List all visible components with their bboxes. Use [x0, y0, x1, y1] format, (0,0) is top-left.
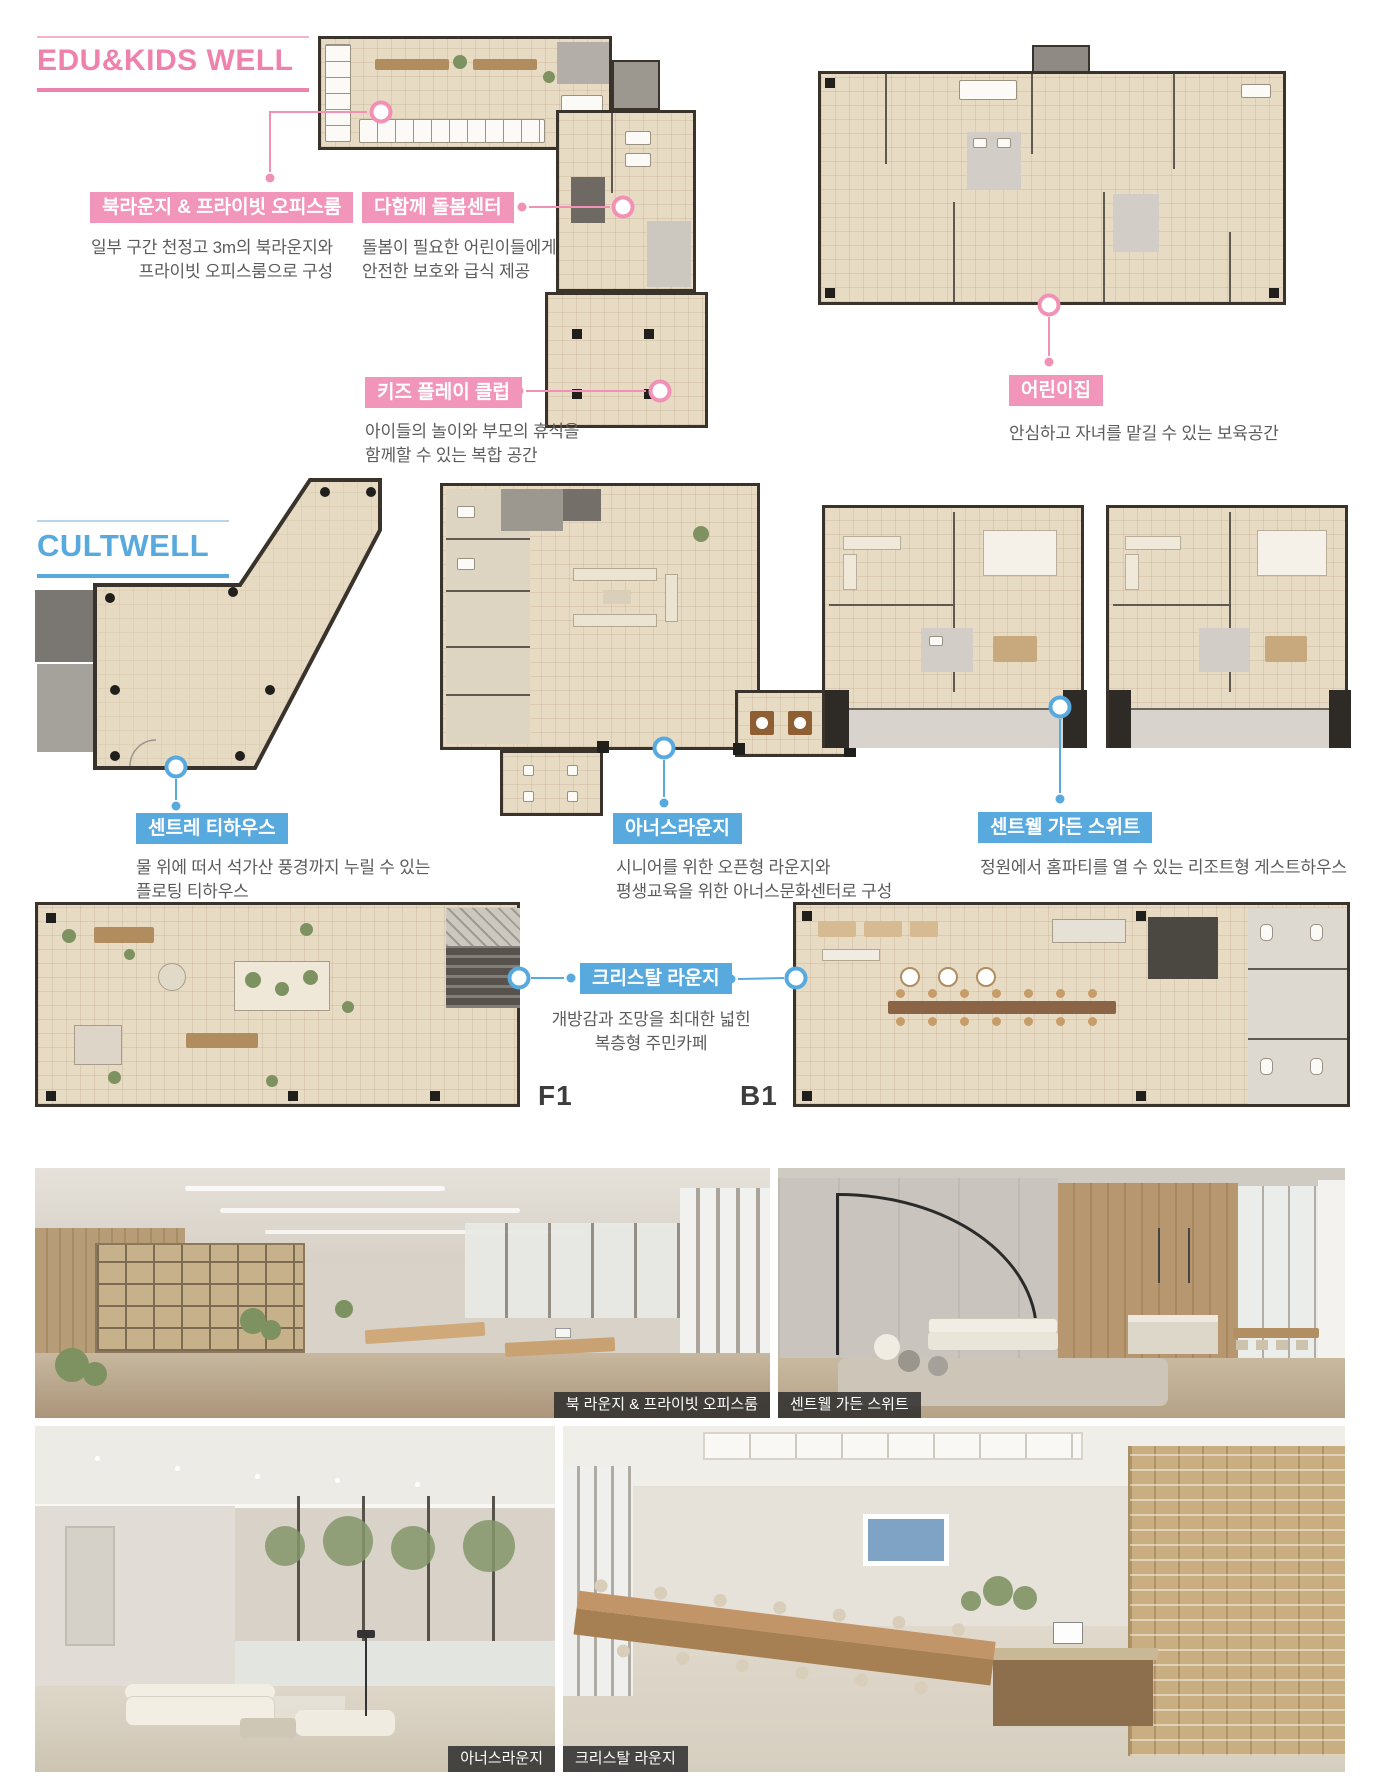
lamp-head [357, 1630, 375, 1638]
kitchen-counter [959, 80, 1017, 100]
wall [446, 646, 530, 648]
locker-column [325, 44, 351, 142]
low-table [240, 1718, 296, 1738]
stairs [446, 946, 520, 1008]
wall [446, 694, 530, 696]
edu-header-underline [37, 88, 309, 92]
sofa [822, 949, 880, 961]
connector-line [738, 978, 784, 979]
connector-dot [172, 802, 181, 811]
chair [523, 791, 534, 802]
lounge-seating [74, 1025, 122, 1065]
floor-plan-tea-house [35, 478, 385, 778]
column [1269, 288, 1279, 298]
round-table [976, 967, 996, 987]
service-room [612, 60, 660, 110]
desk-top [988, 1648, 1158, 1660]
toilet [1260, 1058, 1273, 1075]
stool [992, 989, 1001, 998]
plant [453, 55, 467, 69]
desc-crystal-lounge: 개방감과 조망을 최대한 넓힌 복층형 주민카페 [552, 1008, 751, 1056]
photo-caption-honors-lounge: 아너스라운지 [448, 1746, 555, 1772]
ceiling [35, 1426, 555, 1506]
column [1136, 911, 1146, 921]
column [597, 741, 609, 753]
wall [1031, 74, 1033, 154]
photo-book-lounge: 북 라운지 & 프라이빗 오피스룸 [35, 1168, 770, 1418]
stool [914, 1680, 928, 1694]
floor-tag-f1: F1 [538, 1080, 573, 1112]
toilet [1310, 924, 1323, 941]
pendant-light [1158, 1228, 1160, 1283]
bed [983, 530, 1057, 576]
label-book-lounge: 북라운지 & 프라이빗 오피스룸 [90, 192, 353, 223]
terrace-wall [1063, 690, 1087, 748]
wall [446, 590, 530, 592]
chair [1236, 1340, 1248, 1350]
plant [1013, 1586, 1037, 1610]
garden-terrace [849, 708, 1063, 748]
garden-terrace [1131, 708, 1329, 748]
ceiling-light [335, 1478, 340, 1483]
floor-plan-edu-kids-center [318, 36, 710, 428]
stool [992, 1017, 1001, 1026]
toilet [1260, 924, 1273, 941]
desc-tea-house: 물 위에 떠서 석가산 풍경까지 누릴 수 있는 플로팅 티하우스 [136, 856, 430, 904]
photo-caption-crystal-lounge: 크리스탈 라운지 [563, 1746, 688, 1772]
label-daycare: 어린이집 [1009, 375, 1103, 406]
bathroom-wing [1248, 908, 1347, 1104]
stool [928, 989, 937, 998]
suite-unit [822, 505, 1084, 748]
column [825, 288, 835, 298]
connector-dot [1056, 795, 1065, 804]
label-crystal-lounge: 크리스탈 라운지 [580, 963, 732, 994]
wall [885, 74, 887, 164]
stool [960, 1017, 969, 1026]
fixture [625, 131, 651, 145]
skylight [703, 1432, 1083, 1460]
kids-play-hall [545, 292, 708, 428]
communal-long-table [888, 1001, 1116, 1014]
stool [1088, 1017, 1097, 1026]
cafe-floor [35, 902, 520, 1107]
column [46, 913, 56, 923]
pouf [928, 1356, 948, 1376]
stool [795, 1666, 809, 1680]
stool [1056, 989, 1065, 998]
brochure-page: EDU&KIDS WELL [0, 0, 1381, 1779]
terrace-deck [235, 1641, 555, 1686]
connector-dot [567, 974, 576, 983]
kitchen-island [1052, 919, 1126, 943]
ceiling-light [185, 1186, 445, 1191]
sofa [1125, 554, 1139, 590]
fixture [457, 506, 475, 518]
chair [567, 791, 578, 802]
office-room [647, 221, 691, 287]
wall [1113, 604, 1229, 606]
stool [896, 989, 905, 998]
sofa [1125, 536, 1181, 550]
column [572, 389, 582, 399]
pouf [898, 1350, 920, 1372]
office-wing [556, 110, 696, 292]
photo-honors-lounge: 아너스라운지 [35, 1426, 555, 1772]
stair-core [563, 489, 601, 521]
dining-table [750, 711, 774, 735]
terrace-wall [825, 690, 849, 748]
round-table [158, 963, 186, 991]
desc-garden-suite: 정원에서 홈파티를 열 수 있는 리조트형 게스트하우스 [980, 856, 1347, 880]
tree [265, 1526, 305, 1566]
table [94, 927, 154, 943]
stool [676, 1651, 690, 1665]
dock-block [37, 664, 93, 752]
wall [611, 113, 613, 193]
table [186, 1033, 258, 1048]
sofa-seat [928, 1332, 1058, 1350]
floor-plan-crystal-lounge-f1 [35, 902, 520, 1107]
fixture [973, 138, 987, 148]
dock-block-dark [35, 590, 93, 662]
stool [1088, 989, 1097, 998]
column [802, 1091, 812, 1101]
ceiling-light [415, 1482, 420, 1487]
label-garden-suite: 센트웰 가든 스위트 [978, 812, 1152, 843]
kitchen-island [1128, 1322, 1218, 1354]
terrace-wall [1329, 690, 1351, 748]
label-care-center: 다함께 돌봄센터 [362, 192, 514, 223]
coffee-table [603, 590, 631, 604]
floor-plan-garden-suite-right [1106, 505, 1368, 748]
reception-desk [993, 1660, 1153, 1726]
laptop [555, 1328, 571, 1338]
reading-table [473, 59, 537, 70]
wall [446, 538, 530, 540]
stool [854, 1673, 868, 1687]
sofa [573, 568, 657, 581]
connector-dot [1045, 358, 1054, 367]
fixture [457, 558, 475, 570]
photo-caption-garden-suite: 센트웰 가든 스위트 [778, 1392, 921, 1418]
stool [1056, 1017, 1065, 1026]
suite-unit [1106, 505, 1348, 748]
cafe-floor [793, 902, 1350, 1107]
column [802, 911, 812, 921]
floor-plan-honors-lounge [440, 483, 860, 829]
monitor [1053, 1622, 1083, 1644]
fixture [929, 636, 943, 646]
sofa [843, 536, 901, 550]
fixture [1241, 84, 1271, 98]
daycare-hall [818, 71, 1286, 305]
stool [896, 1017, 905, 1026]
reading-table [375, 59, 449, 70]
tree [463, 1520, 515, 1572]
plant [961, 1591, 981, 1611]
washroom [1113, 194, 1159, 252]
column [430, 1091, 440, 1101]
plant [261, 1320, 281, 1340]
toilet [1310, 1058, 1323, 1075]
seating [864, 921, 902, 937]
column [572, 329, 582, 339]
photo-crystal-lounge: 크리스탈 라운지 [563, 1426, 1345, 1772]
desc-kids-play-club: 아이들의 놀이와 부모의 휴식을 함께할 수 있는 복합 공간 [365, 420, 579, 468]
sofa [295, 1710, 395, 1736]
plant [62, 929, 76, 943]
column [825, 78, 835, 88]
door [65, 1526, 115, 1646]
bathroom [921, 628, 973, 672]
stair-core [1148, 917, 1218, 979]
chair [1256, 1340, 1268, 1350]
seating [818, 921, 856, 937]
armchair [874, 1334, 900, 1360]
column [644, 389, 654, 399]
floor-tag-b1: B1 [740, 1080, 778, 1112]
column [733, 743, 745, 755]
lamp-stem [836, 1193, 839, 1355]
curtain [1318, 1180, 1345, 1360]
floor-lamp [365, 1636, 367, 1716]
wall [1103, 192, 1105, 302]
chair [567, 765, 578, 776]
artwork [863, 1514, 949, 1566]
chair [1276, 1340, 1288, 1350]
meeting-room [557, 42, 609, 84]
dining-table [1233, 1328, 1319, 1338]
plant [335, 1300, 353, 1318]
plant [124, 949, 135, 960]
bed [1257, 530, 1327, 576]
floor-plan-daycare [812, 45, 1290, 307]
connector-dot [266, 174, 275, 183]
fixture [997, 138, 1011, 148]
edu-header-topline [37, 36, 309, 38]
dining-table [1265, 636, 1307, 662]
plant [693, 526, 709, 542]
round-table [938, 967, 958, 987]
plant [342, 1001, 354, 1013]
wall [1229, 232, 1231, 302]
lounge-hall [440, 483, 760, 750]
pendant-light [1188, 1228, 1190, 1283]
stool [1024, 1017, 1033, 1026]
desc-honors-lounge: 시니어를 위한 오픈형 라운지와 평생교육을 위한 아너스문화센터로 구성 [616, 856, 892, 904]
stool [928, 1017, 937, 1026]
floor-plan-crystal-lounge-b1 [793, 902, 1350, 1107]
desc-book-lounge: 일부 구간 천정고 3m의 북라운지와 프라이빗 오피스룸으로 구성 [91, 236, 333, 284]
ceiling-light [175, 1466, 180, 1471]
desc-daycare: 안심하고 자녀를 맡길 수 있는 보육공간 [1009, 422, 1279, 446]
dining-table [993, 636, 1037, 662]
ceiling-light [220, 1208, 520, 1213]
bathroom [1199, 628, 1249, 672]
desc-care-center: 돌봄이 필요한 어린이들에게 안전한 보호와 급식 제공 [362, 236, 556, 284]
study-annex [500, 750, 603, 816]
sofa [665, 574, 678, 622]
tree [391, 1526, 435, 1570]
chair [523, 765, 534, 776]
photo-caption-book-lounge: 북 라운지 & 프라이빗 오피스룸 [554, 1392, 770, 1418]
plant [266, 1075, 278, 1087]
plant [543, 71, 555, 83]
fixture [625, 153, 651, 167]
column [1136, 1091, 1146, 1101]
work-table [365, 1322, 486, 1344]
chair [1296, 1340, 1308, 1350]
planter-box [234, 961, 330, 1011]
stool [735, 1658, 749, 1672]
round-table [900, 967, 920, 987]
window-wall [680, 1188, 770, 1353]
label-honors-lounge: 아너스라운지 [613, 813, 742, 844]
tree [323, 1516, 373, 1566]
stool [616, 1644, 630, 1658]
wall [1173, 74, 1175, 169]
sofa [573, 614, 657, 627]
locker-row [359, 119, 545, 143]
ceiling-light [255, 1474, 260, 1479]
sofa [843, 554, 857, 590]
stool [960, 989, 969, 998]
column [46, 1091, 56, 1101]
column [644, 329, 654, 339]
window-band [465, 1223, 680, 1318]
dining-table [788, 711, 812, 735]
edu-section-title: EDU&KIDS WELL [37, 44, 294, 78]
wall [953, 202, 955, 302]
elevator-core [571, 177, 605, 223]
stool [1024, 989, 1033, 998]
photo-garden-suite: 센트웰 가든 스위트 [778, 1168, 1345, 1418]
stone-wall [1128, 1446, 1345, 1756]
void-hatch [446, 908, 520, 946]
plant [983, 1576, 1013, 1606]
floor-plan-garden-suite-left [822, 505, 1084, 748]
label-tea-house: 센트레 티하우스 [136, 813, 288, 844]
island-top [1128, 1315, 1218, 1322]
column [288, 1091, 298, 1101]
plant [300, 923, 313, 936]
label-kids-play-club: 키즈 플레이 클럽 [365, 377, 522, 408]
plant [83, 1362, 107, 1386]
terrace-wall [1109, 690, 1131, 748]
wall [829, 604, 953, 606]
service-room [501, 489, 563, 531]
plant [108, 1071, 121, 1084]
seating [910, 921, 938, 937]
ceiling-light [95, 1456, 100, 1461]
